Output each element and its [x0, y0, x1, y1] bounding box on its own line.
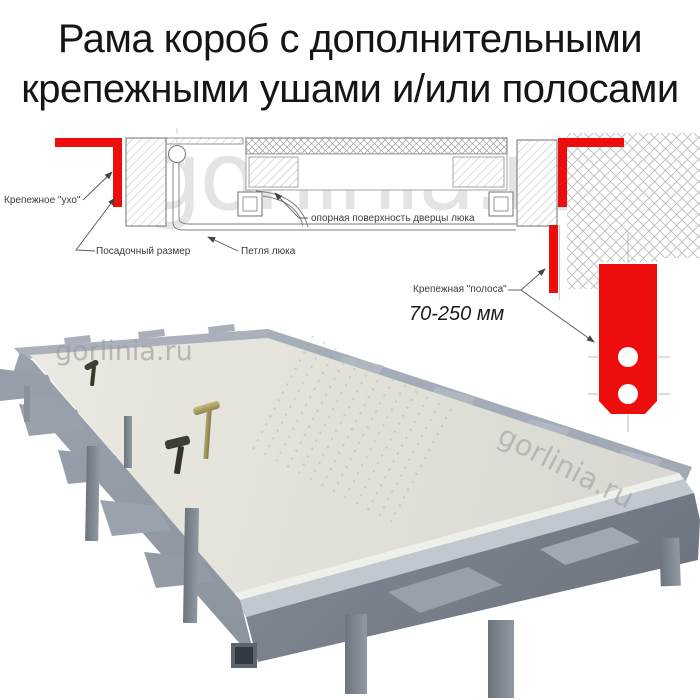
frame-leg [488, 620, 514, 698]
mounting-strip-plate [588, 233, 670, 432]
label-strip-length-range: 70-250 мм [409, 303, 504, 326]
watermark-photo-left: gorlinia.ru [55, 336, 193, 367]
frame-corner-tube [231, 643, 257, 668]
technical-diagram [0, 0, 700, 460]
door-cross-section [238, 138, 513, 216]
frame-leg [659, 538, 681, 587]
frame-leg [345, 614, 367, 694]
mounting-strip [549, 225, 558, 293]
frame-profile-right [517, 140, 557, 226]
frame-leg [183, 508, 199, 623]
label-seat-size: Посадочный размер [96, 246, 190, 257]
label-mounting-strip: Крепежная "полоса" [413, 284, 507, 295]
label-hatch-hinge: Петля люка [241, 246, 295, 257]
frame-leg [85, 446, 100, 541]
page: { "title": { "line1": "Рама короб с допо… [0, 0, 700, 700]
label-support-surface: опорная поверхность дверцы люка [311, 213, 475, 224]
label-mounting-ear: Крепежное "ухо" [4, 195, 80, 206]
